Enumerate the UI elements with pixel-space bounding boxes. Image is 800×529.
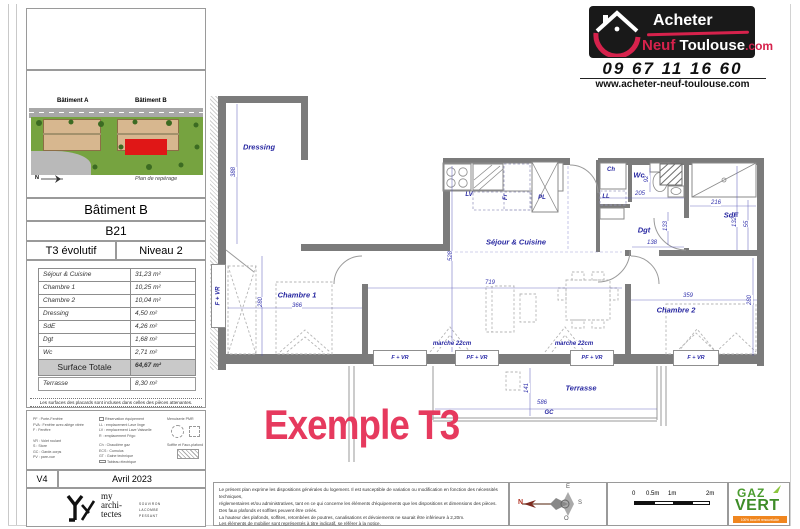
- disclaimer-box: Le présent plan exprime les dispositions…: [213, 482, 509, 526]
- scale-0: 0: [632, 491, 635, 497]
- gazvert-leaf-icon: [773, 485, 781, 493]
- architect-firm-name: my archi- tectes: [101, 492, 122, 520]
- wall-right: [757, 158, 764, 366]
- scale-1m: 1m: [668, 491, 676, 497]
- compass-o: O: [564, 516, 569, 522]
- wall-dressing-right: [301, 96, 308, 160]
- unit-type-cell: T3 évolutif: [26, 241, 116, 260]
- dim-sejour-528: 528: [448, 251, 454, 261]
- dim-chambre2-359: 359: [683, 293, 693, 299]
- my-architectes-logo-icon: [65, 493, 95, 523]
- disclaimer-line: Le présent plan exprime les dispositions…: [219, 487, 503, 501]
- dim-dgt-138: 138: [647, 240, 657, 246]
- terrace-value: 8,30 m²: [131, 378, 195, 390]
- compass-n: N: [518, 499, 523, 506]
- terrace-row: Terrasse 8,30 m²: [38, 377, 196, 391]
- acheter-neuf-toulouse-logo: Acheter Neuf Toulouse.com: [589, 6, 755, 58]
- unit-code-cell: B21: [26, 221, 206, 241]
- dim-terrasse-586: 586: [537, 400, 547, 406]
- dim-chambre2-280: 280: [747, 295, 753, 305]
- wall-sejour-top-left: [301, 244, 450, 251]
- logo-word-com: .com: [745, 39, 773, 53]
- wall-left: [218, 96, 226, 370]
- legend-col3: Menuiserie PMR Soffite et Faux-plafond: [167, 417, 205, 459]
- entrance-door-arc: [570, 165, 598, 193]
- room-label-terrasse: Terrasse: [566, 384, 597, 393]
- label-pl-placard: PL: [538, 195, 546, 201]
- compass-box: N E S O: [509, 482, 607, 526]
- siteplan-compass-icon: [41, 173, 67, 185]
- gazvert-tagline: 100% local et renouvelable: [733, 516, 787, 523]
- room-label-dgt: Dgt: [638, 226, 651, 235]
- dim-sejour-719: 719: [485, 280, 495, 286]
- label-ll-lave-linge: LL: [602, 194, 609, 200]
- table-row: SdE4,26 m²: [39, 321, 195, 334]
- tableau-electrique-icon: [99, 460, 106, 463]
- areas-table: Séjour & Cuisine31,23 m² Chambre 110,25 …: [38, 268, 196, 376]
- room-label-chambre1: Chambre 1: [278, 291, 317, 300]
- wall-dgt-chambre2-stub: [625, 250, 631, 256]
- table-row: Chambre 210,04 m²: [39, 295, 195, 308]
- dim-sde-132: 132: [732, 217, 738, 227]
- disclaimer-line: Des faux plafonds et soffites peuvent êt…: [219, 508, 503, 515]
- room-label-sejour: Séjour & Cuisine: [486, 238, 546, 247]
- pmr-circle-icon: [171, 425, 184, 438]
- window-chambre2: F + VR: [673, 350, 719, 366]
- siteplan-caption: Plan de repérage: [135, 176, 177, 182]
- scalebar-seg1: [634, 501, 654, 505]
- room-label-chambre2: Chambre 2: [657, 306, 696, 315]
- logo-word-neuf: Neuf: [642, 37, 675, 54]
- window-sejour-2: PF + VR: [570, 350, 614, 366]
- gazvert-box: GAZ VERT 100% local et renouvelable: [728, 482, 790, 526]
- label-marche-1: marche 22cm: [432, 341, 472, 347]
- sheet-border-right: [790, 4, 791, 525]
- wall-kitchen-left: [443, 160, 450, 251]
- sidebar-empty-box: [26, 8, 206, 70]
- siteplan-trees: [31, 117, 203, 175]
- house-icon: [591, 7, 649, 57]
- legend-pmr-label: Menuiserie PMR: [167, 417, 205, 423]
- wall-insulation-hatch: [210, 96, 218, 370]
- architect-partners: SOUVIRON LACOMBE PESSANT: [139, 501, 161, 519]
- dim-dgt-133: 133: [663, 221, 669, 231]
- wall-sde-bottom: [684, 250, 764, 256]
- legend-box: PF : Porte-Fenêtre FVA : Fenêtre avec al…: [26, 410, 206, 470]
- phone-number: 09 67 11 16 60: [575, 59, 770, 79]
- label-gc-garde-corps: GC: [545, 410, 554, 416]
- room-label-dressing: Dressing: [243, 143, 275, 152]
- date-cell: Avril 2023: [58, 470, 206, 488]
- logo-word-acheter: Acheter: [653, 12, 713, 29]
- dim-wc-205: 205: [635, 191, 645, 197]
- scale-2m: 2m: [706, 491, 714, 497]
- reservation-icon: [99, 417, 104, 421]
- terrace-label: Terrasse: [39, 378, 131, 390]
- soffite-hatch-icon: [177, 449, 199, 459]
- dim-dressing-388: 388: [231, 167, 237, 177]
- siteplan-label-batiment-b: Bâtiment B: [135, 98, 167, 104]
- sheet-margin-strip: [8, 4, 17, 525]
- website-url[interactable]: www.acheter-neuf-toulouse.com: [575, 79, 770, 90]
- unit-building-cell: Bâtiment B: [26, 198, 206, 221]
- plan-sheet: { "header": { "logo": { "acheter": "Ache…: [0, 0, 800, 529]
- pmr-square-icon: [189, 426, 200, 437]
- window-left: F + VR: [211, 264, 226, 328]
- label-lv-lave-vaisselle: LV: [465, 192, 472, 198]
- areas-note: Les surfaces des placards sont incluses …: [30, 398, 202, 407]
- dim-wc-92: 92: [644, 176, 650, 183]
- table-row: Séjour & Cuisine31,23 m²: [39, 269, 195, 282]
- dim-sde-216: 216: [711, 200, 721, 206]
- wall-top-right: [598, 158, 764, 165]
- siteplan-road-dashes: [29, 112, 203, 113]
- disclaimer-line: Les éléments de mobilier sont représenté…: [219, 521, 503, 528]
- dim-chambre1-366: 366: [292, 303, 302, 309]
- disclaimer-line: réglementaires et/ou administratives, ta…: [219, 501, 503, 508]
- disclaimer-line: La hauteur des plafonds, soffites, retom…: [219, 515, 503, 522]
- label-marche-2: marche 22cm: [554, 341, 594, 347]
- siteplan-north-label: N: [35, 175, 39, 181]
- wall-dgt-chambre2-mid: [659, 250, 684, 256]
- version-cell: V4: [26, 470, 58, 488]
- siteplan-box: Bâtiment A Bâtiment B N Plan de repérage: [26, 70, 206, 198]
- unit-level-cell: Niveau 2: [116, 241, 206, 260]
- scalebar-seg4: [692, 501, 710, 505]
- window-chambre1: F + VR: [373, 350, 427, 366]
- wall-ll-bottom: [598, 204, 630, 208]
- legend-soffite-label: Soffite et Faux-plafond: [167, 443, 205, 449]
- window-sejour-1: PF + VR: [455, 350, 499, 366]
- scale-05m: 0.5m: [646, 491, 659, 497]
- dim-chambre1-280: 280: [258, 297, 264, 307]
- wall-chambre2-left: [625, 284, 631, 360]
- wall-dressing-top: [218, 96, 308, 103]
- compass-s: S: [578, 500, 582, 506]
- date-label: Avril 2023: [112, 474, 152, 484]
- example-caption: Exemple T3: [264, 402, 459, 449]
- table-row: Dressing4,50 m²: [39, 308, 195, 321]
- surface-total-row: Surface Totale64,67 m²: [39, 360, 195, 375]
- dim-sde-55: 55: [744, 221, 750, 228]
- label-ch-chaudiere: Ch: [607, 167, 615, 173]
- scalebar-box: 0 0.5m 1m 2m: [607, 482, 728, 526]
- legend-col1: PF : Porte-Fenêtre FVA : Fenêtre avec al…: [33, 417, 95, 461]
- scalebar-seg2: [654, 501, 674, 505]
- dim-terrasse-141: 141: [524, 383, 530, 393]
- unit-building-label: Bâtiment B: [84, 202, 148, 217]
- scalebar-seg3: [674, 501, 692, 505]
- unit-code-label: B21: [105, 224, 126, 238]
- unit-type-label: T3 évolutif: [46, 245, 97, 257]
- room-label-wc: Wc: [633, 171, 644, 180]
- table-row: Wc2,71 m²: [39, 347, 195, 360]
- version-label: V4: [36, 474, 47, 484]
- table-row: Dgt1,68 m²: [39, 334, 195, 347]
- table-row: Chambre 110,25 m²: [39, 282, 195, 295]
- siteplan-label-batiment-a: Bâtiment A: [57, 98, 88, 104]
- architect-box: my archi- tectes SOUVIRON LACOMBE PESSAN…: [26, 488, 206, 527]
- wall-chambre1-right: [362, 284, 368, 360]
- unit-level-label: Niveau 2: [139, 245, 182, 257]
- wall-ch-wc-divider: [628, 160, 632, 202]
- compass-rose-icon: [510, 483, 608, 525]
- label-fr-frigo: Fr: [503, 194, 509, 200]
- logo-red-swoosh: [647, 31, 749, 37]
- legend-col2: Réservation équipement LL : emplacement …: [99, 417, 165, 466]
- logo-word-toulouse: Toulouse: [680, 37, 746, 54]
- gazvert-vert: VERT: [735, 497, 780, 515]
- wall-top-mid: [443, 158, 570, 165]
- compass-e: E: [566, 484, 570, 490]
- wall-wc-sde-divider-upper: [684, 158, 689, 218]
